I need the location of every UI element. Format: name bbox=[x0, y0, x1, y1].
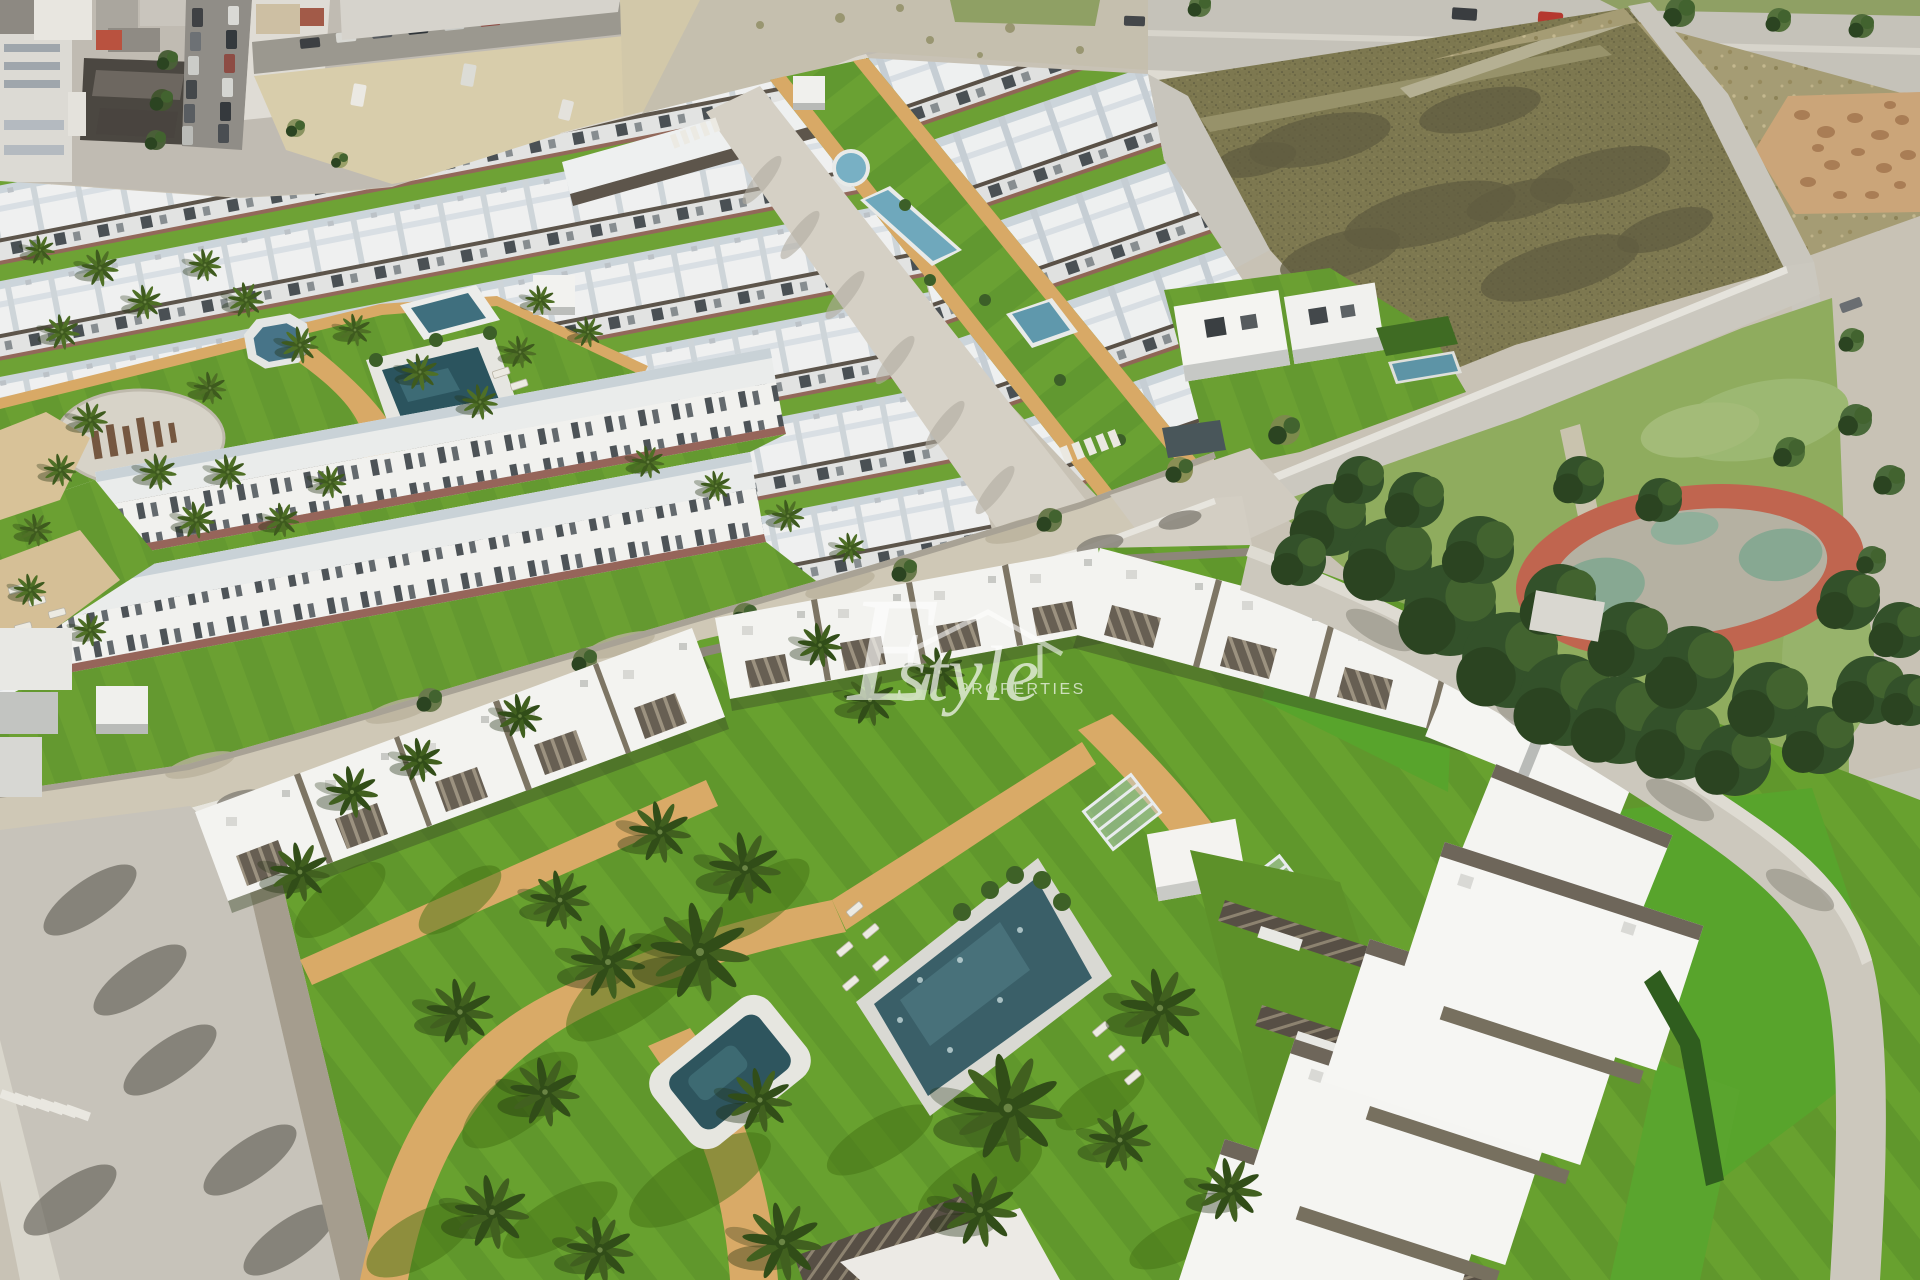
svg-text:PROPERTIES: PROPERTIES bbox=[958, 681, 1086, 698]
svg-text:style: style bbox=[896, 630, 1039, 717]
